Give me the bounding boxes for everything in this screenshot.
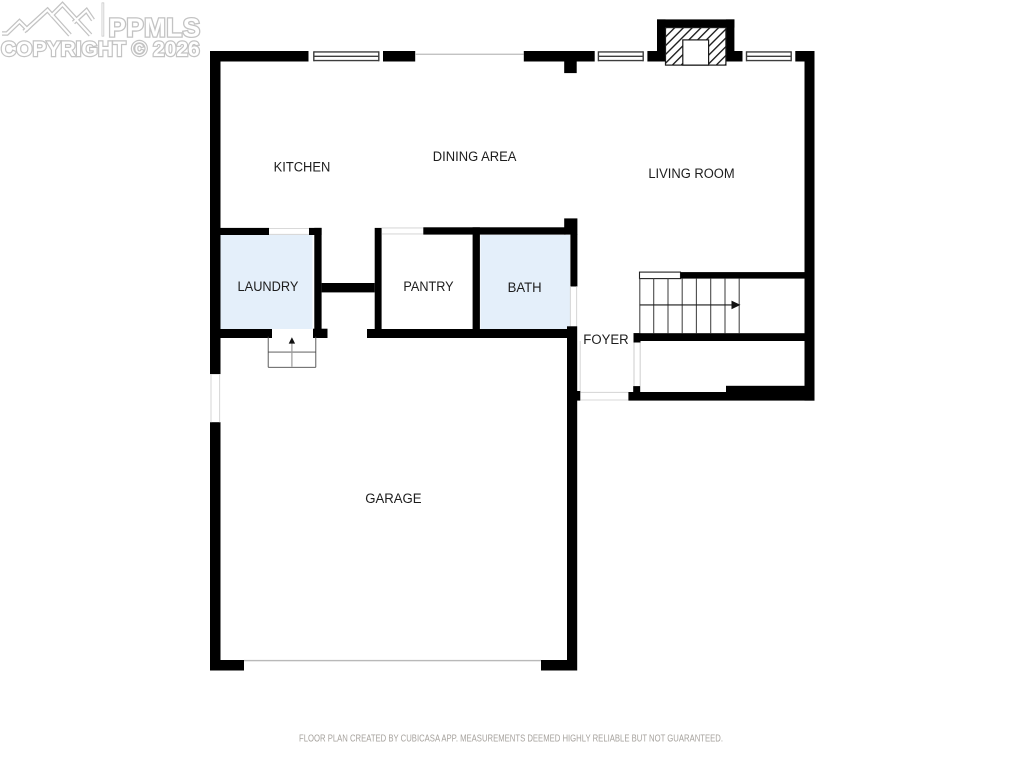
svg-text:LAUNDRY: LAUNDRY	[238, 279, 299, 295]
svg-text:COPYRIGHT © 2026: COPYRIGHT © 2026	[1, 38, 200, 61]
svg-text:BATH: BATH	[508, 280, 542, 296]
svg-text:FLOOR PLAN CREATED BY CUBICASA: FLOOR PLAN CREATED BY CUBICASA APP. MEAS…	[299, 734, 723, 745]
svg-text:FOYER: FOYER	[583, 332, 628, 348]
svg-text:DINING AREA: DINING AREA	[433, 149, 517, 165]
svg-text:PANTRY: PANTRY	[403, 279, 454, 295]
svg-text:GARAGE: GARAGE	[365, 491, 421, 507]
svg-text:KITCHEN: KITCHEN	[274, 159, 331, 175]
svg-text:LIVING ROOM: LIVING ROOM	[648, 166, 734, 182]
